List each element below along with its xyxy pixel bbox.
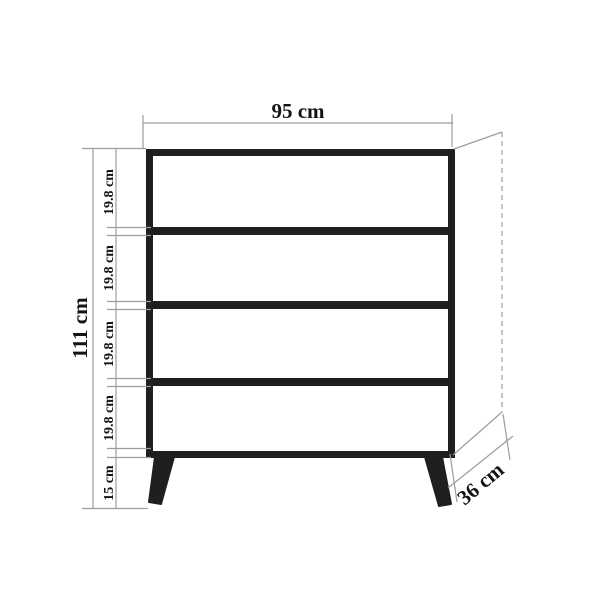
furniture-dimension-diagram: 95 cm 111 cm 19.8 cm 19.8 cm 19.8 cm 19.… (0, 0, 604, 604)
drawer-height-label-3: 19.8 cm (102, 321, 117, 367)
drawer-divider-2 (153, 301, 448, 309)
drawer-height-label-2: 19.8 cm (102, 245, 117, 291)
cabinet (149, 153, 452, 507)
drawer-divider-3 (153, 378, 448, 386)
drawer-divider-1 (153, 227, 448, 235)
leg-height-label: 15 cm (102, 465, 117, 501)
width-label: 95 cm (271, 99, 325, 123)
drawer-height-label-1: 19.8 cm (102, 169, 117, 215)
drawer-height-label-4: 19.8 cm (102, 395, 117, 441)
height-label: 111 cm (68, 297, 92, 359)
